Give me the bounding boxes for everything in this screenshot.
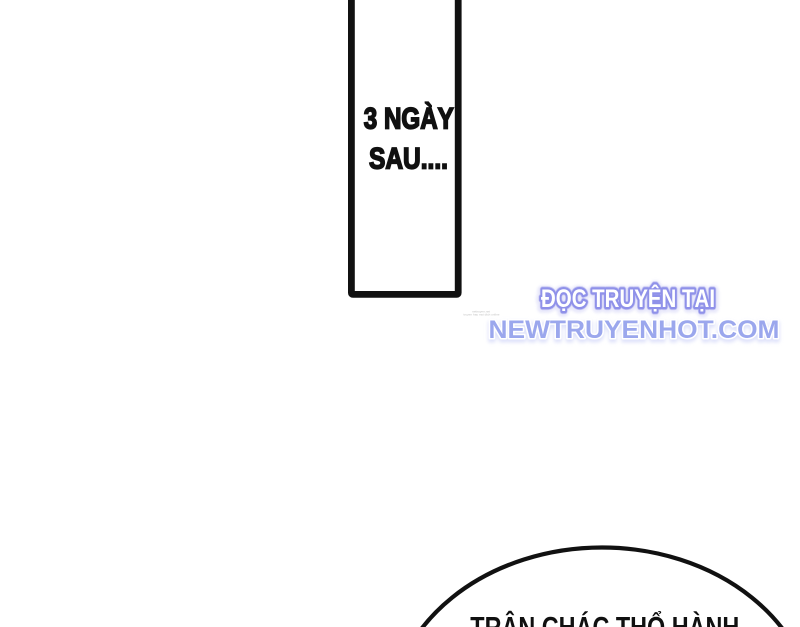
svg-text:SAU....: SAU.... xyxy=(369,143,448,176)
svg-text:TRẬN CHÁC THỔ HÀNH: TRẬN CHÁC THỔ HÀNH xyxy=(470,611,739,627)
svg-text:3 NGÀY: 3 NGÀY xyxy=(364,102,454,136)
svg-text:NEWTRUYENHOT.COM: NEWTRUYENHOT.COM xyxy=(489,316,780,344)
svg-text:ĐỌC TRUYỆN TẠI: ĐỌC TRUYỆN TẠI xyxy=(541,283,715,313)
